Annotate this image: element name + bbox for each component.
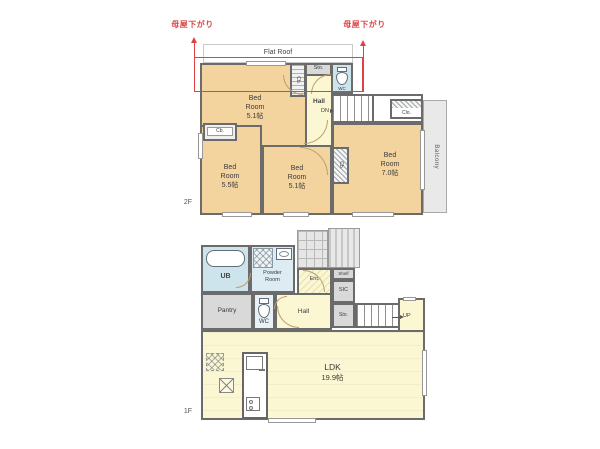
closet-clo-2f-label: Clo.	[392, 110, 421, 116]
lowered-roof-outline	[194, 57, 363, 92]
lowered-roof-arrow-line-right	[363, 46, 364, 92]
label-line: Bed	[365, 152, 415, 161]
up-arrow-icon	[360, 40, 366, 46]
balcony: Balcony	[423, 100, 447, 213]
stairs-2f	[331, 94, 374, 123]
stairs-down-arrow	[330, 109, 334, 113]
label-line: Room	[205, 173, 255, 182]
window	[403, 297, 416, 301]
closet-cb-mid: Cb.	[332, 147, 349, 184]
balcony-label: Balcony	[431, 144, 439, 169]
bedroom-2f-top-label: Bed Room 5.1帖	[230, 95, 280, 121]
stove-icon	[246, 397, 260, 411]
closet-cb-left-label: Cb.	[205, 128, 235, 134]
up-label: UP	[403, 313, 419, 320]
floor-plan: 母屋下がり 母屋下がり Flat Roof Cb. Sto. WC Clo. C…	[0, 0, 600, 449]
floor-hatch-icon	[206, 353, 224, 371]
roof-lowered-note-left: 母屋下がり	[150, 20, 235, 30]
burner-icon	[249, 406, 253, 410]
closet-clo-2f: Clo.	[390, 99, 423, 119]
label-line: Powder	[250, 270, 295, 277]
label-line: Room	[272, 174, 322, 183]
toilet-room-1f-label: WC	[253, 319, 275, 327]
up-arrow-head	[400, 315, 404, 319]
balcony-door-window	[420, 130, 425, 190]
stairs-down-label: DN	[305, 108, 329, 115]
bathtub-icon	[206, 250, 245, 267]
lowered-roof-arrow-line-left	[194, 42, 195, 57]
window	[222, 212, 252, 217]
window	[283, 212, 309, 217]
floor-label-2f: 2F	[168, 199, 192, 208]
label-line: Room	[250, 277, 295, 284]
closet-cb-mid-label: Cb.	[337, 162, 343, 170]
window	[422, 350, 427, 396]
washbasin-bowl	[279, 251, 289, 257]
burner-icon	[249, 400, 253, 404]
ldk-label: LDK 19.9帖	[305, 362, 360, 382]
washer-pan-icon	[253, 248, 273, 268]
porch-canopy	[328, 228, 360, 268]
label-line: Bed	[205, 164, 255, 173]
closet-cb-left: Cb.	[203, 123, 237, 141]
closet-clo-2f-doors	[392, 101, 421, 108]
window	[352, 212, 394, 217]
room-size: 7.0帖	[365, 170, 415, 179]
storage-sto-1f-label: Sto.	[332, 312, 355, 318]
room-size: 5.1帖	[230, 113, 280, 122]
room-name: LDK	[305, 362, 360, 373]
room-size: 5.1帖	[272, 183, 322, 192]
washbasin-icon	[276, 248, 292, 260]
room-size: 19.9帖	[305, 373, 360, 382]
bedroom-2f-right-label: Bed Room 7.0帖	[365, 152, 415, 178]
shelf-label: Shelf	[332, 271, 355, 277]
pantry-label: Pantry	[201, 307, 253, 315]
sink-icon	[246, 356, 263, 370]
label-line: Bed	[230, 95, 280, 104]
bedroom-2f-left-label: Bed Room 5.5帖	[205, 164, 255, 190]
faucet-icon	[259, 369, 265, 371]
porch-tile	[297, 230, 328, 268]
label-line: Room	[365, 161, 415, 170]
window	[268, 418, 316, 423]
window	[198, 133, 203, 159]
powder-room-label: Powder Room	[250, 270, 295, 284]
up-arrow-icon	[191, 37, 197, 43]
label-line: Room	[230, 104, 280, 113]
stairs-1f	[355, 303, 400, 328]
floor-storage-icon	[219, 378, 234, 393]
floor-label-1f: 1F	[168, 408, 192, 417]
hall-2f-label: Hall	[305, 98, 333, 106]
room-size: 5.5帖	[205, 182, 255, 191]
roof-lowered-note-right: 母屋下がり	[322, 20, 407, 30]
shoe-closet-sic-label: SIC	[332, 287, 355, 294]
